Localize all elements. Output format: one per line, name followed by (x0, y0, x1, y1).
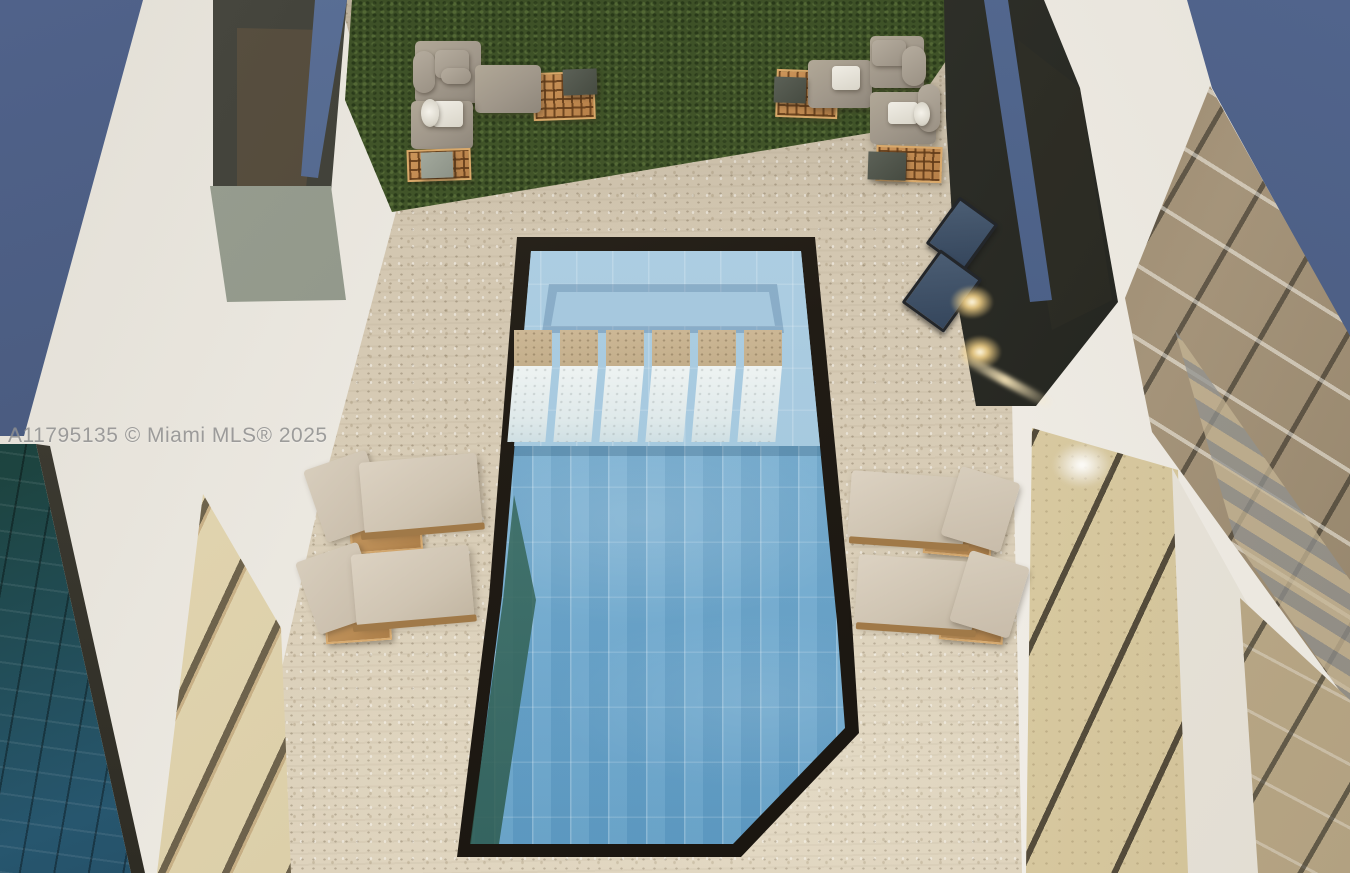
table-tray (868, 151, 907, 180)
fountain-pillar (744, 330, 782, 442)
fountain-pillar (560, 330, 598, 442)
sofa-set-left (385, 25, 600, 205)
pillar-face (737, 366, 782, 442)
accent-light (950, 285, 994, 319)
rolled-towel (914, 102, 930, 126)
pillar-cap (560, 330, 598, 366)
pillar-face (599, 366, 644, 442)
fountain-pillar (698, 330, 736, 442)
white-curtain (1052, 442, 1112, 488)
sofa-pillow (902, 46, 926, 86)
lounger-cushion (359, 453, 483, 535)
pillar-face (645, 366, 690, 442)
fountain-pillar (606, 330, 644, 442)
sofa-pillow (413, 51, 435, 93)
sofa-bolster (441, 68, 471, 84)
sofa-pillow (872, 40, 906, 66)
table-tray (774, 76, 807, 103)
pillar-face (553, 366, 598, 442)
sun-lounger (288, 532, 486, 653)
fountain-pillar (514, 330, 552, 442)
mls-watermark: A11795135 © Miami MLS® 2025 (8, 424, 328, 448)
pillar-face (507, 366, 552, 442)
sun-lounger (849, 544, 1036, 656)
sofa-seat-module (475, 65, 541, 113)
pillar-face (691, 366, 736, 442)
folded-towel (832, 66, 860, 90)
rolled-towel (421, 99, 439, 127)
fountain-pillar (652, 330, 690, 442)
pillar-cap (652, 330, 690, 366)
lounger-cushion (351, 545, 475, 627)
table-tray (563, 68, 598, 95)
sofa-set-right (760, 20, 960, 200)
pool-aerial-render: A11795135 © Miami MLS® 2025 (0, 0, 1350, 873)
pillar-cap (698, 330, 736, 366)
pillar-cap (606, 330, 644, 366)
table-tray (421, 151, 454, 178)
pillar-cap (744, 330, 782, 366)
pillar-cap (514, 330, 552, 366)
